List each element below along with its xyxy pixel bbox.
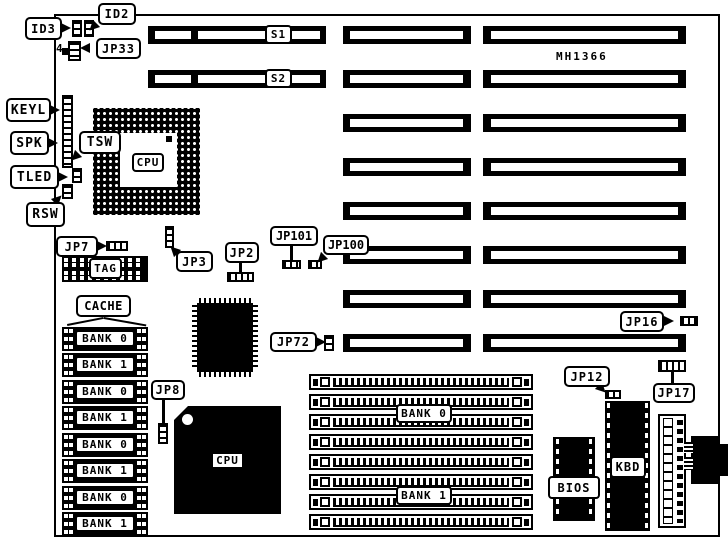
keyboard-din-connector [691,436,720,484]
isa-slot-segment [343,158,471,176]
chipset-qfp [192,298,258,377]
jumper-jp101 [282,260,301,269]
pointer-jp101 [290,244,293,261]
callout-jp100: JP100 [323,235,369,255]
pointer-jp7 [97,241,107,251]
kbd-label: KBD [610,456,646,478]
isa-slot-segment [483,246,686,264]
cache-bank-label: BANK 0 [75,436,135,453]
cache-chip: BANK 0 [62,380,148,404]
isa-slot-segment [483,290,686,308]
pointer-jp8 [162,399,165,424]
isa-slot-segment [343,334,471,352]
callout-jp2: JP2 [225,242,259,263]
callout-jp7: JP7 [56,236,98,257]
cache-bank-label: BANK 0 [75,489,135,506]
cache-bank-label: BANK 1 [75,409,135,426]
pointer-jp16 [664,316,674,326]
jumper-tled [72,168,82,183]
isa-slot-segment [483,26,686,44]
isa-slot-segment [343,26,471,44]
callout-tled: TLED [10,165,59,189]
callout-jp3: JP3 [176,251,213,272]
jumper-jp8 [158,423,168,444]
slot-s1-label: S1 [265,25,292,44]
power-connector [658,414,686,528]
cpu-qfp-label: CPU [211,452,244,469]
callout-jp72: JP72 [270,332,317,352]
cache-bank-label: BANK 1 [75,515,135,532]
pointer-spk [48,138,58,148]
isa-slot-segment [343,114,471,132]
tag-label: TAG [89,258,122,279]
isa-slot-segment [343,290,471,308]
jumper-jp16 [680,316,698,326]
callout-tsw: TSW [79,131,121,154]
jumper-jp2 [227,272,254,282]
pointer-jp33 [80,43,90,53]
pointer-tled [58,172,68,182]
callout-keyl: KEYL [6,98,51,122]
callout-spk: SPK [10,131,49,155]
jumper-jp7 [106,241,128,251]
isa-slot-segment [483,114,686,132]
cache-chip: BANK 1 [62,512,148,536]
cpu-qfp: CPU [174,406,281,514]
callout-jp101: JP101 [270,226,318,246]
bios-label: BIOS [548,476,600,499]
cpu-pga-socket: CPU [93,108,200,215]
cache-bank-label: BANK 1 [75,462,135,479]
callout-jp16: JP16 [620,311,664,332]
callout-rsw: RSW [26,202,65,227]
cache-chip: BANK 1 [62,459,148,483]
cache-chip: BANK 0 [62,327,148,351]
isa-slot-segment [483,334,686,352]
isa-slot-segment [483,158,686,176]
pin1-dot [166,136,172,142]
slot-s2 [148,70,326,88]
simm-bank1-label: BANK 1 [396,486,452,505]
motherboard-diagram: MH1366 S1 S2 CPU CPU [0,0,728,543]
keyboard-din-connector-bump [719,444,728,476]
isa-slot-segment [343,70,471,88]
cache-bank-label: BANK 0 [75,330,135,347]
pointer-id3 [61,23,71,33]
isa-slot-segment [343,202,471,220]
jumper-jp33-pin4 [62,48,69,55]
tag-chip: TAG [62,256,148,282]
cache-bank-label: BANK 0 [75,383,135,400]
jumper-jp12 [605,390,621,399]
simm-socket [309,454,533,470]
din-pin-block [684,442,693,453]
simm-socket [309,374,533,390]
board-model-text: MH1366 [556,50,608,63]
cache-chip: BANK 0 [62,433,148,457]
callout-jp12: JP12 [564,366,610,387]
simm-socket [309,434,533,450]
din-pin-block [684,457,693,470]
isa-slot-segment [483,202,686,220]
cache-chip: BANK 1 [62,406,148,430]
callout-jp17: JP17 [653,383,695,403]
cache-chip: BANK 1 [62,353,148,377]
pointer-jp72 [316,337,326,347]
jumper-id3-a [72,20,82,37]
callout-id2: ID2 [98,3,136,25]
jp33-pin-number: 4 [56,42,63,55]
slot-s1 [148,26,326,44]
pointer-keyl [50,105,60,115]
callout-jp8: JP8 [151,380,185,400]
simm-socket [309,514,533,530]
callout-cache: CACHE [76,295,131,317]
pin1-dot [182,414,193,425]
cache-bank-label: BANK 1 [75,356,135,373]
isa-slot-segment [483,70,686,88]
cache-chip: BANK 0 [62,486,148,510]
callout-jp33: JP33 [96,38,141,59]
slot-s2-label: S2 [265,69,292,88]
callout-id3: ID3 [25,17,62,40]
simm-bank0-label: BANK 0 [396,404,452,423]
cpu-socket-label: CPU [132,153,164,172]
